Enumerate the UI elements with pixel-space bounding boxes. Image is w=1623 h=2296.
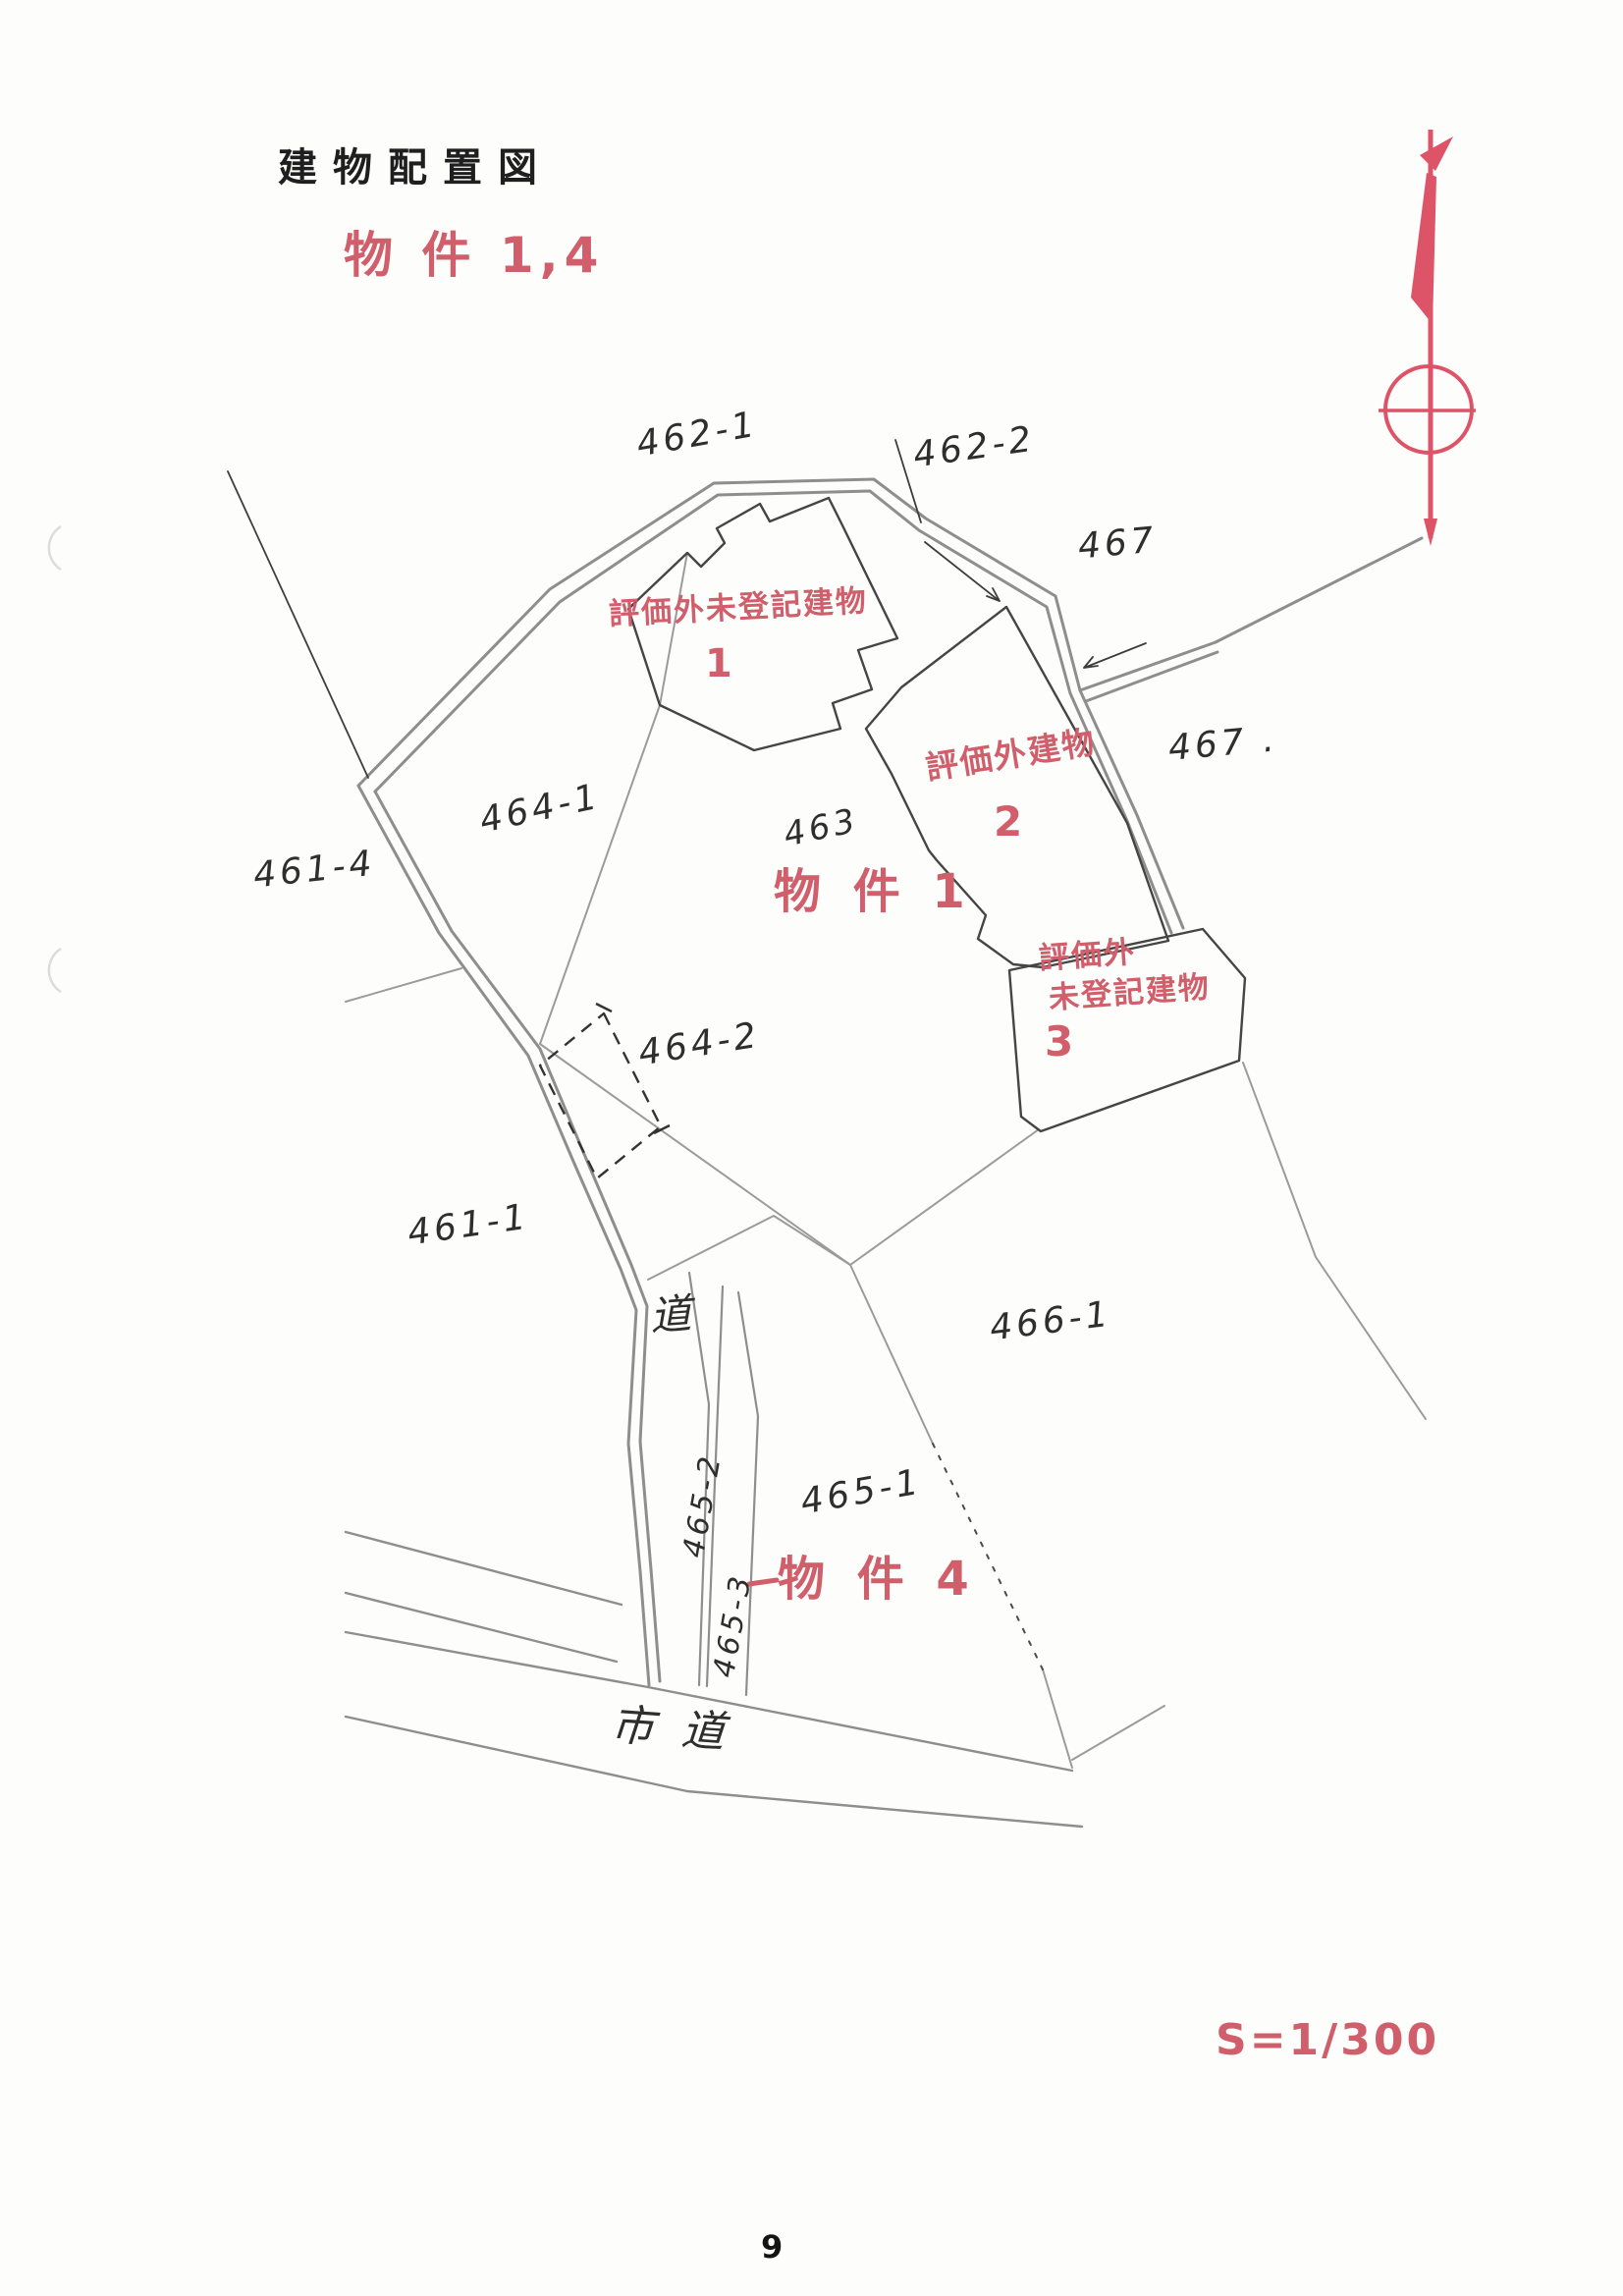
leader-461-4 (228, 471, 368, 778)
road-label-shido: 市道 (610, 1704, 754, 1757)
annotation-building3-title-line1: 評価外 (1038, 938, 1137, 975)
leader-arrow-467 (1084, 643, 1146, 668)
north-arrow-icon (1379, 130, 1476, 546)
scanned-building-layout-page: 建物配置図 物 件 1,4 462-1 462-2 467 467 . 464-… (0, 0, 1623, 2296)
page-title: 建物配置図 (278, 136, 553, 192)
parcel-label-467-lower: 467 . (1167, 722, 1279, 767)
cadastral-map-drawing (0, 0, 1623, 2296)
page-number: 9 (761, 2231, 786, 2263)
scan-artifact-marks (49, 526, 61, 992)
subject-header-label: 物 件 1,4 (344, 216, 604, 287)
annotation-building2-number: 2 (994, 801, 1024, 843)
annotation-subject1: 物 件 1 (774, 868, 973, 915)
annotation-building3-number: 3 (1045, 1021, 1075, 1063)
road-label-michi: 道 (649, 1292, 697, 1337)
annotation-subject4: 物 件 4 (778, 1556, 977, 1603)
map-scale-label: S=1/300 (1216, 2015, 1439, 2065)
parcel-label-467-upper: 467 (1077, 523, 1160, 566)
annotation-building1-number: 1 (705, 644, 734, 683)
